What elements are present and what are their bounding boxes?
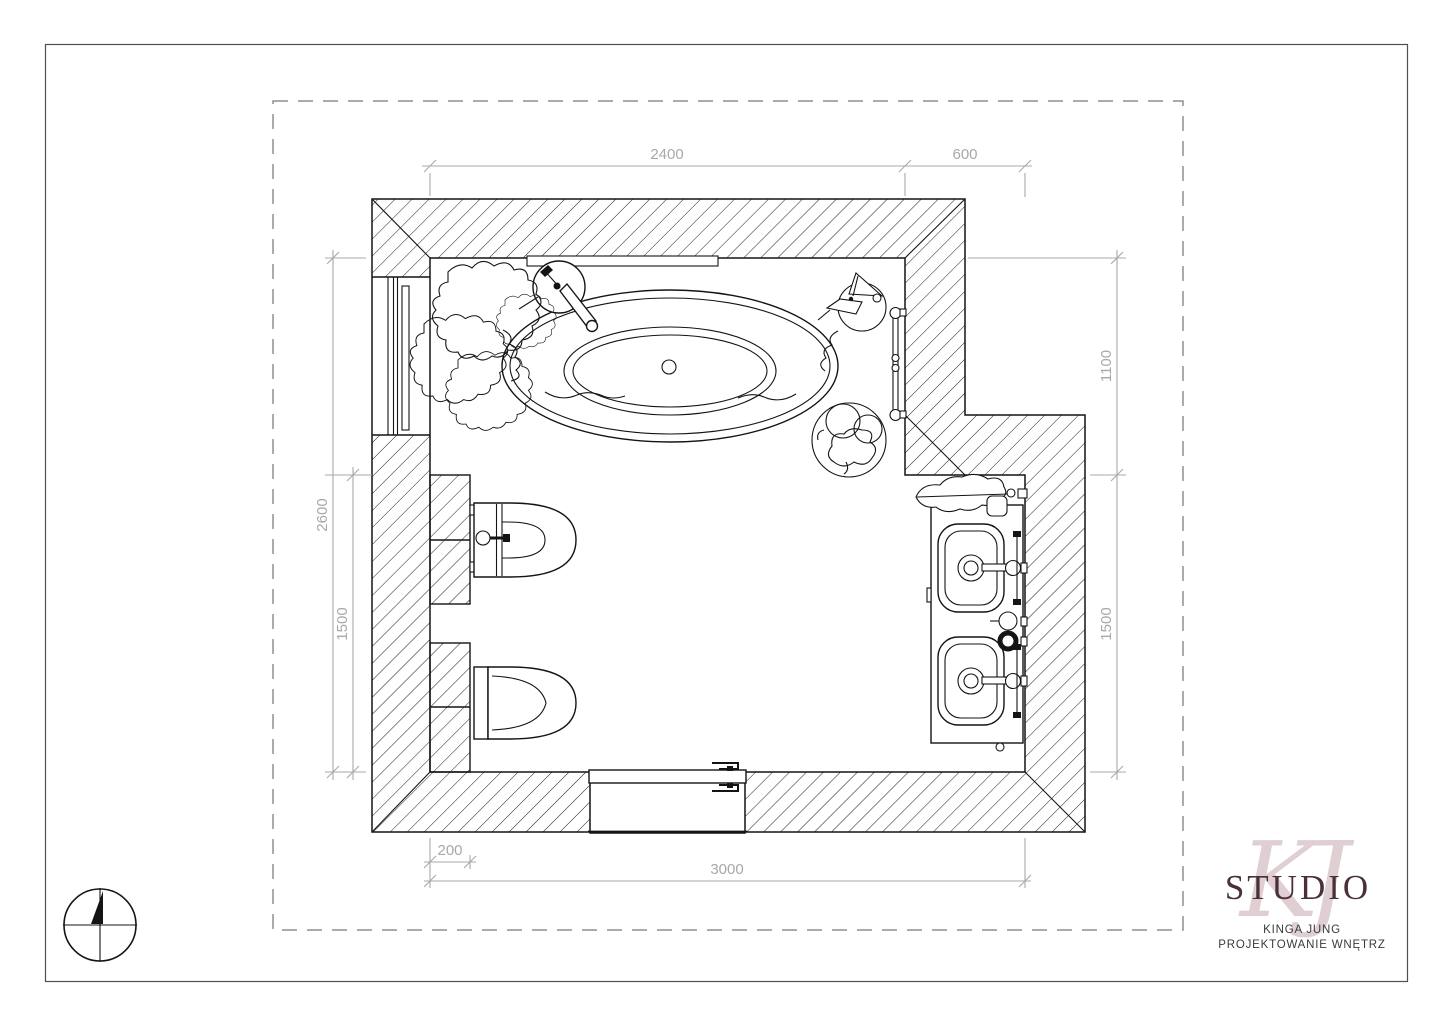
toilet-tank-plate	[474, 667, 488, 739]
wall-plate	[1018, 489, 1027, 498]
rail-mount	[1013, 644, 1021, 650]
rail-mount	[1013, 599, 1021, 605]
rail-mount	[1013, 712, 1021, 718]
toilet-body	[488, 667, 576, 739]
vanity-knob	[996, 743, 1004, 751]
north-compass-icon	[63, 888, 137, 962]
bidet-icon	[470, 503, 576, 577]
logo-name: KINGA JUNG	[1263, 924, 1341, 936]
handle-detail	[727, 766, 733, 771]
dim-label-200: 200	[437, 842, 462, 859]
bidet-faucet-head	[503, 534, 510, 542]
dim-label-1500-right: 1500	[1098, 607, 1115, 640]
stem-end	[1007, 489, 1015, 497]
radiator-valve	[892, 355, 899, 362]
faucet-handle	[1006, 674, 1021, 689]
wall-plate	[1021, 617, 1027, 626]
vanity-handle	[927, 588, 931, 602]
dim-label-2600: 2600	[314, 498, 331, 531]
dim-label-3000: 3000	[710, 861, 743, 878]
door-slab	[589, 770, 746, 783]
dim-label-2400: 2400	[650, 146, 683, 163]
radiator-end	[890, 308, 901, 319]
rail-mount	[1013, 531, 1021, 537]
dim-label-1500-left: 1500	[334, 607, 351, 640]
radiator-valve	[892, 365, 899, 372]
faucet-pivot	[554, 283, 561, 290]
radiator-end	[890, 410, 901, 421]
soap-dispenser	[999, 612, 1017, 630]
faucet-wall-plate	[1021, 563, 1027, 573]
logo-studio-text: STUDIO	[1225, 868, 1371, 907]
decor-knob	[873, 294, 881, 302]
decor-dot	[849, 297, 853, 301]
faucet-spout-end	[587, 321, 598, 332]
radiator-mount	[900, 411, 906, 418]
floor-plan-canvas: 2400 600 2600 1500 1100 1500 200	[0, 0, 1452, 1026]
double-vanity-icon	[916, 474, 1027, 751]
dim-label-1100: 1100	[1098, 350, 1115, 382]
niche-panel	[402, 286, 409, 430]
faucet-handle	[1006, 561, 1021, 576]
faucet-wall-plate	[1021, 676, 1027, 686]
radiator-mount	[900, 309, 906, 316]
toilet-icon	[474, 667, 576, 739]
wall-plate	[1021, 637, 1027, 646]
dim-label-600: 600	[952, 146, 977, 163]
handle-detail	[727, 783, 733, 788]
vase	[987, 496, 1007, 516]
drawing-sheet: 2400 600 2600 1500 1100 1500 200	[0, 0, 1452, 1026]
logo-tagline: PROJEKTOWANIE WNĘTRZ	[1218, 939, 1385, 951]
bidet-faucet	[476, 531, 490, 545]
